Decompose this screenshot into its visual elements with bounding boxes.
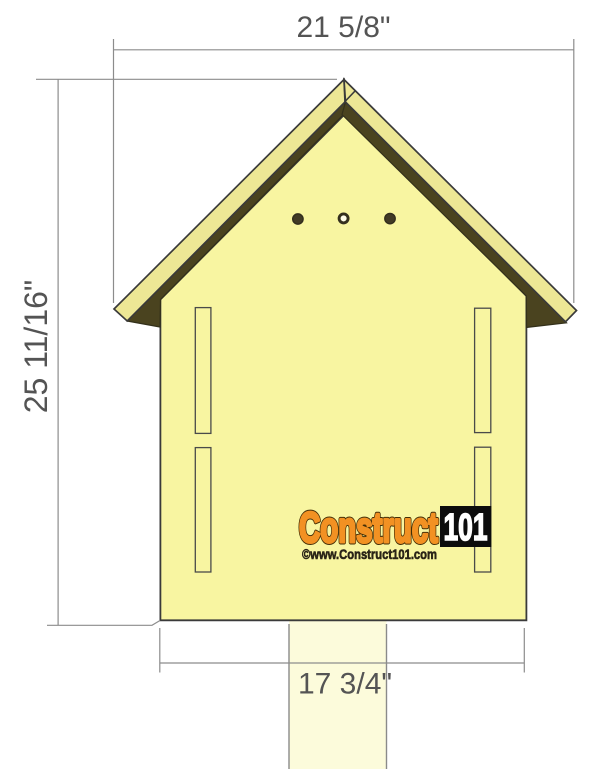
svg-text:21 5/8": 21 5/8" (296, 11, 390, 44)
svg-text:17 3/4": 17 3/4" (298, 668, 392, 701)
svg-text:25 11/16": 25 11/16" (18, 280, 54, 414)
svg-text:101: 101 (444, 507, 488, 549)
svg-text:Construct: Construct (299, 504, 438, 552)
svg-text:©www.Construct101.com: ©www.Construct101.com (302, 547, 437, 562)
